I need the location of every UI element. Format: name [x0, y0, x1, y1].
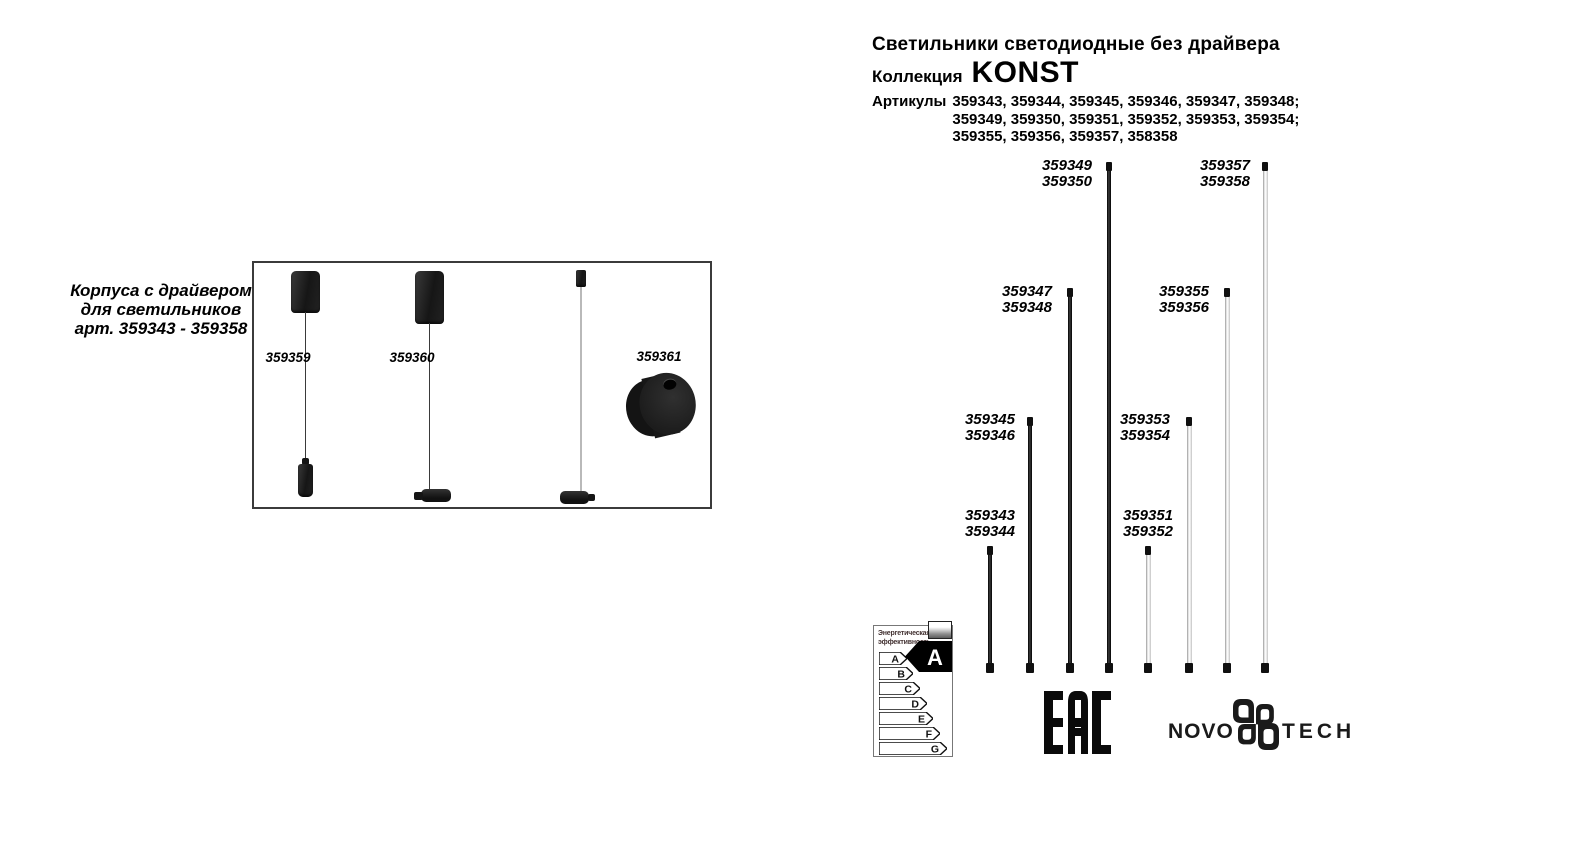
- led-rod-359343: [986, 546, 994, 673]
- caption-line: Корпуса с драйвером: [66, 281, 256, 300]
- rod-label: 359349359350: [1022, 158, 1092, 190]
- articles-label: Артикулы: [872, 93, 946, 146]
- svg-text:D: D: [911, 699, 919, 711]
- article-number: 359358: [1180, 174, 1250, 190]
- article-number: 359347: [982, 284, 1052, 300]
- page-title: Светильники светодиодные без драйвера: [872, 34, 1280, 56]
- surface-mount-359361: [619, 364, 705, 448]
- connector-nub: [414, 492, 423, 500]
- pendant-connector-359360: [421, 489, 451, 502]
- energy-class-arrow-f: F: [879, 727, 940, 740]
- suspension-connector: [560, 491, 589, 504]
- rod-body: [1263, 171, 1268, 663]
- collection-label: Коллекция: [872, 67, 963, 87]
- catalog-page: Светильники светодиодные без драйвера Ко…: [0, 0, 1587, 858]
- rod-label: 359357359358: [1180, 158, 1250, 190]
- energy-class-arrow-e: E: [879, 712, 933, 725]
- article-number: 359350: [1022, 174, 1092, 190]
- svg-text:A: A: [891, 654, 899, 666]
- collection-name: KONST: [972, 56, 1080, 90]
- product-label: 359359: [261, 350, 315, 365]
- rod-label: 359347359348: [982, 284, 1052, 316]
- article-number: 359353: [1100, 412, 1170, 428]
- rod-label: 359345359346: [945, 412, 1015, 444]
- brand-text-tech: TECH: [1282, 720, 1355, 744]
- article-number: 359355: [1139, 284, 1209, 300]
- articles-lines: 359343, 359344, 359345, 359346, 359347, …: [952, 93, 1299, 146]
- rod-body: [1187, 426, 1192, 663]
- articles-block: Артикулы 359343, 359344, 359345, 359346,…: [872, 93, 1299, 146]
- svg-text:A: A: [927, 645, 943, 670]
- article-number: 359345: [945, 412, 1015, 428]
- svg-text:G: G: [931, 744, 939, 756]
- rod-bottom-cap: [1261, 663, 1269, 673]
- energy-efficiency-label: Энергетическая эффективность A B C D: [873, 625, 953, 757]
- rod-top-cap: [987, 546, 993, 555]
- rod-top-cap: [1224, 288, 1230, 297]
- rod-top-cap: [1145, 546, 1151, 555]
- rod-top-cap: [1186, 417, 1192, 426]
- pendant-cord-359360: [429, 323, 430, 489]
- pendant-canopy-359360: [415, 271, 444, 324]
- pendant-cord-359359: [305, 312, 306, 459]
- brand-text-novo: NOVO: [1168, 720, 1234, 744]
- energy-class-arrow-g: G: [879, 742, 947, 755]
- article-number: 359357: [1180, 158, 1250, 174]
- svg-text:C: C: [904, 684, 912, 696]
- rod-body: [1146, 555, 1151, 663]
- rod-bottom-cap: [1185, 663, 1193, 673]
- articles-line: 359355, 359356, 359357, 358358: [952, 128, 1299, 146]
- rod-body: [1068, 297, 1072, 663]
- svg-text:F: F: [926, 729, 933, 741]
- energy-rating-arrow: A: [905, 641, 952, 672]
- caption-line: для светильников: [66, 300, 256, 319]
- driver-products-box: 359359 359360 359361: [252, 261, 712, 509]
- rod-label: 359353359354: [1100, 412, 1170, 444]
- led-rod-359345: [1026, 417, 1034, 673]
- article-number: 359343: [955, 508, 1025, 524]
- svg-text:E: E: [918, 714, 925, 726]
- rod-bottom-cap: [986, 663, 994, 673]
- article-number: 359352: [1113, 524, 1183, 540]
- energy-title-line: Энергетическая: [878, 630, 931, 639]
- rod-bottom-cap: [1026, 663, 1034, 673]
- rod-body: [988, 555, 992, 663]
- article-number: 359349: [1022, 158, 1092, 174]
- energy-gradient-bar-icon: [928, 621, 952, 639]
- pendant-canopy-359359: [291, 271, 320, 313]
- energy-class-arrow-c: C: [879, 682, 920, 695]
- driver-box-caption: Корпуса с драйвером для светильников арт…: [66, 281, 256, 338]
- articles-line: 359349, 359350, 359351, 359352, 359353, …: [952, 111, 1299, 129]
- clover-icon: [1232, 696, 1282, 758]
- led-rod-359357: [1261, 162, 1269, 673]
- led-rod-359355: [1223, 288, 1231, 673]
- rod-bottom-cap: [1105, 663, 1113, 673]
- pendant-holder-359359: [298, 464, 313, 497]
- article-number: 359354: [1100, 428, 1170, 444]
- rod-bottom-cap: [1144, 663, 1152, 673]
- rod-bottom-cap: [1223, 663, 1231, 673]
- led-rod-359347: [1066, 288, 1074, 673]
- rod-body: [1225, 297, 1230, 663]
- led-rod-359351: [1144, 546, 1152, 673]
- suspension-top-cap: [576, 270, 586, 287]
- caption-line: арт. 359343 - 359358: [66, 319, 256, 338]
- rod-top-cap: [1027, 417, 1033, 426]
- led-rod-359353: [1185, 417, 1193, 673]
- energy-class-arrow-d: D: [879, 697, 927, 710]
- article-number: 359346: [945, 428, 1015, 444]
- collection-row: Коллекция KONST: [872, 56, 1079, 90]
- brand-logo: NOVO TECH: [1168, 682, 1388, 762]
- rod-label: 359351359352: [1113, 508, 1183, 540]
- rod-body: [1028, 426, 1032, 663]
- article-number: 359351: [1113, 508, 1183, 524]
- rod-top-cap: [1106, 162, 1112, 171]
- product-label: 359361: [632, 349, 686, 364]
- product-label: 359360: [385, 350, 439, 365]
- rod-label: 359355359356: [1139, 284, 1209, 316]
- article-number: 359348: [982, 300, 1052, 316]
- connector-nub: [588, 494, 595, 501]
- rod-top-cap: [1067, 288, 1073, 297]
- rod-label: 359343359344: [955, 508, 1025, 540]
- article-number: 359356: [1139, 300, 1209, 316]
- suspension-cord: [580, 287, 582, 491]
- article-number: 359344: [955, 524, 1025, 540]
- eac-logo-icon: [1044, 691, 1111, 755]
- articles-line: 359343, 359344, 359345, 359346, 359347, …: [952, 93, 1299, 111]
- rod-top-cap: [1262, 162, 1268, 171]
- rod-bottom-cap: [1066, 663, 1074, 673]
- energy-class-arrow-a: A: [879, 652, 907, 665]
